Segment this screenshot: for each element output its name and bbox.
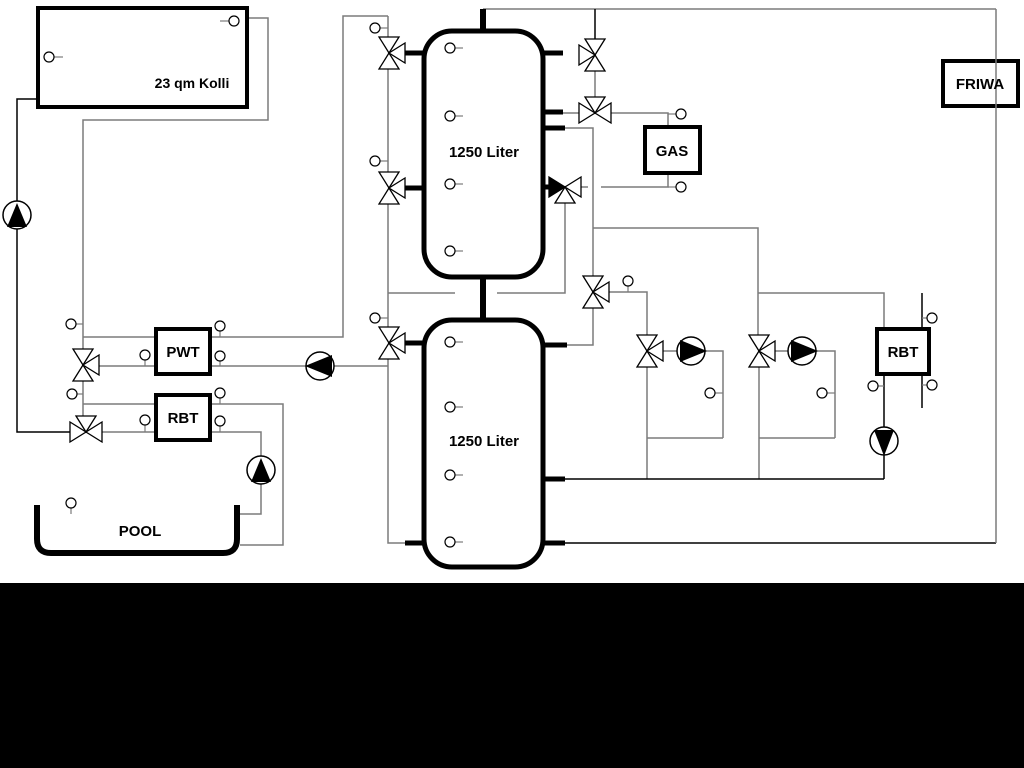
temperature-sensor-icon [370,313,388,323]
solar-collector-box: 23 qm Kolli [38,8,247,107]
rbt-left-heat-exchanger-box: RBT [156,395,210,440]
temperature-sensor-icon [215,321,225,337]
gas-label: GAS [656,143,689,160]
rbt-right-label: RBT [888,344,919,361]
three-way-valve-icon [579,39,605,71]
temperature-sensor-icon [140,415,150,432]
three-way-valve-icon [549,177,581,203]
hydraulic-schematic: FRIWA 1250 Liter 1250 Liter 23 qm Kolli … [0,0,1024,768]
temperature-sensor-icon [817,388,835,398]
three-way-valve-icon [379,37,405,69]
temperature-sensor-icon [922,380,937,390]
pwt-label: PWT [166,344,199,361]
pump-icon [247,456,275,484]
friwa-label: FRIWA [956,76,1004,93]
three-way-valve-icon [379,172,405,204]
tank1-label: 1250 Liter [449,144,519,161]
temperature-sensor-icon [370,156,388,166]
rbt-right-heat-exchanger-box: RBT [877,329,929,374]
pool-basin: POOL [37,505,237,553]
temperature-sensor-icon [668,109,686,119]
pump-icon [788,337,818,365]
bottom-black-bar [0,583,1024,768]
buffer-tank-2: 1250 Liter [424,320,543,567]
three-way-valve-icon [73,349,99,381]
three-way-valve-icon [637,335,663,367]
temperature-sensor-icon [370,23,388,33]
three-way-valve-icon [583,276,609,308]
gas-boiler-box: GAS [645,127,700,173]
temperature-sensor-icon [668,182,686,192]
pwt-heat-exchanger-box: PWT [156,329,210,374]
three-way-valve-icon [379,327,405,359]
pool-label: POOL [119,523,162,540]
tank2-label: 1250 Liter [449,433,519,450]
temperature-sensor-icon [922,313,937,323]
temperature-sensor-icon [705,388,723,398]
temperature-sensor-icon [67,389,83,399]
temperature-sensor-icon [868,381,884,391]
three-way-valve-icon [749,335,775,367]
temperature-sensor-icon [66,498,76,514]
three-way-valve-icon [70,416,102,442]
pump-icon [677,337,707,365]
temperature-sensor-icon [215,351,225,366]
pump-icon [3,201,31,229]
temperature-sensor-icon [66,319,83,329]
pump-icon [870,427,898,456]
rbt-left-label: RBT [168,410,199,427]
buffer-tank-1: 1250 Liter [424,31,543,277]
temperature-sensor-icon [215,416,225,432]
pump-icon [305,352,334,380]
temperature-sensor-icon [623,276,633,292]
collector-label: 23 qm Kolli [155,75,230,91]
three-way-valve-icon [579,97,611,123]
temperature-sensor-icon [140,350,150,366]
temperature-sensor-icon [215,388,225,404]
